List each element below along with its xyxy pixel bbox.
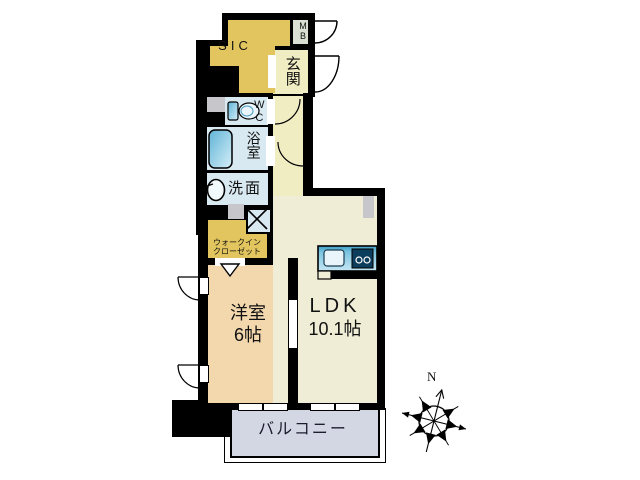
structure-block <box>172 400 232 437</box>
pillar <box>363 196 374 218</box>
label-ldk-size: 10.1帖 <box>294 319 376 339</box>
door-arc-entrance <box>315 56 339 92</box>
label-western-room-size: 6帖 <box>208 325 288 345</box>
balcony-sliding-door <box>335 403 360 411</box>
balcony-sliding-door <box>238 403 263 411</box>
door-gap-toilet <box>267 99 275 124</box>
closet-opening <box>215 258 245 266</box>
window-western-room <box>199 365 209 383</box>
window-arc-western-1 <box>178 277 200 300</box>
laundry-space <box>246 208 272 234</box>
entrance-step-line <box>273 94 313 96</box>
window-arc-western-2 <box>178 365 200 388</box>
label-meter-box: MB <box>293 21 308 41</box>
label-toilet: WC <box>253 99 265 125</box>
label-washroom: 洗面 <box>228 181 262 198</box>
room-hallway <box>273 93 303 203</box>
label-bathroom: 浴室 <box>245 131 261 159</box>
label-shoe-closet: SIC <box>206 39 264 54</box>
label-walk-in-closet: ウォークイン クローゼット <box>206 238 268 256</box>
window-western-room <box>199 277 209 295</box>
door-gap-washroom <box>266 136 275 166</box>
label-western-room: 洋室 <box>208 303 288 323</box>
label-balcony: バルコニー <box>230 421 376 439</box>
label-entrance: 玄関 <box>283 56 300 86</box>
label-compass-north: N <box>427 370 436 385</box>
balcony-sliding-door <box>310 403 335 411</box>
floor-plan-canvas: SIC MB 玄関 WC 浴室 洗面 ウォークイン クローゼット 洋室 6帖 L… <box>0 0 640 480</box>
balcony-sliding-door <box>263 403 288 411</box>
compass-rose-icon <box>394 382 474 460</box>
pillar <box>228 204 244 219</box>
label-ldk: LDK <box>294 295 376 317</box>
door-gap-entrance <box>268 55 276 88</box>
door-arc-meter-box <box>315 21 337 43</box>
label-walk-in-closet-line2: クローゼット <box>206 247 268 256</box>
pillar <box>207 97 225 112</box>
label-walk-in-closet-line1: ウォークイン <box>206 238 268 247</box>
